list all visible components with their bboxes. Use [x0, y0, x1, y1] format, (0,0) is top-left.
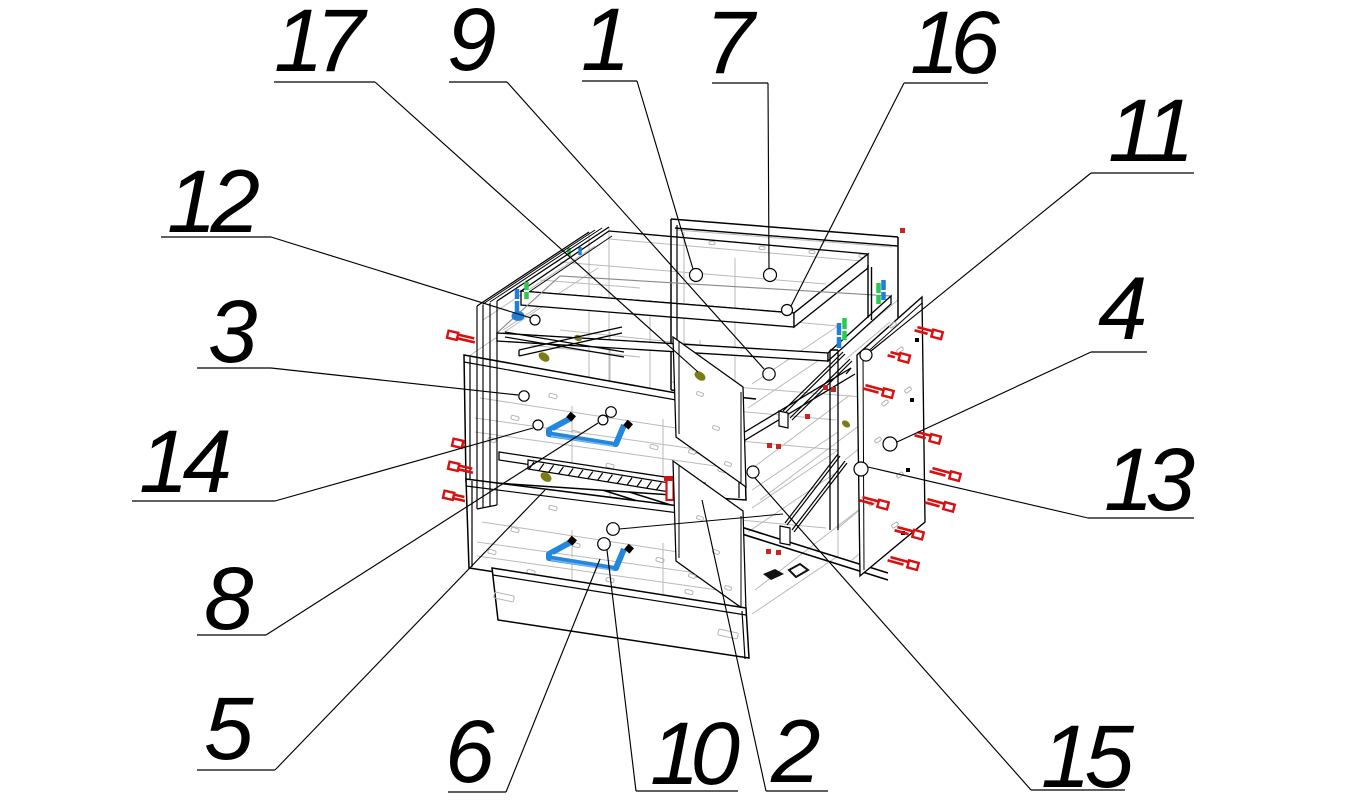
svg-text:13: 13	[1104, 429, 1194, 529]
svg-text:8: 8	[204, 548, 254, 648]
svg-text:6: 6	[445, 701, 495, 801]
svg-text:17: 17	[274, 0, 368, 90]
svg-text:2: 2	[770, 701, 821, 801]
svg-text:12: 12	[167, 151, 259, 251]
svg-text:11: 11	[1108, 80, 1188, 180]
svg-text:5: 5	[204, 678, 254, 778]
svg-text:1: 1	[581, 0, 631, 89]
svg-text:3: 3	[208, 281, 258, 381]
svg-text:10: 10	[650, 703, 739, 802]
svg-text:15: 15	[1041, 706, 1134, 802]
svg-text:9: 9	[447, 0, 497, 89]
svg-text:16: 16	[910, 0, 1000, 92]
svg-text:14: 14	[139, 411, 229, 511]
svg-text:4: 4	[1098, 258, 1148, 358]
svg-text:7: 7	[705, 0, 758, 92]
